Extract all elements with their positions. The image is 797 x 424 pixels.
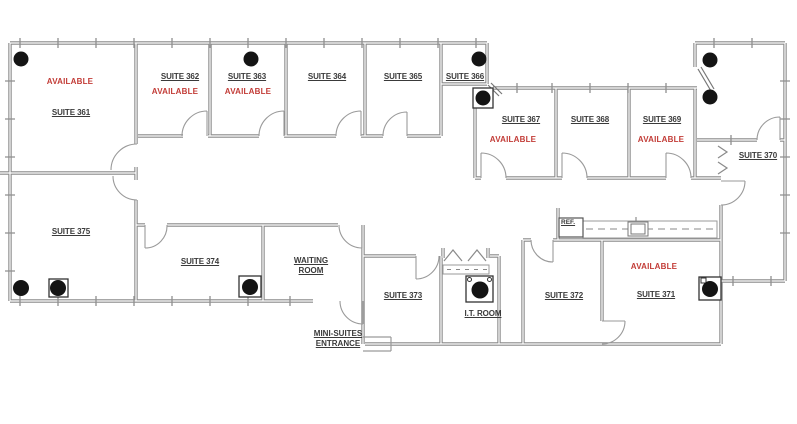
waiting-room-line1: WAITING (294, 256, 328, 265)
floor-plan: AVAILABLE SUITE 361 SUITE 362 AVAILABLE … (0, 0, 797, 424)
label-suite-365: SUITE 365 (384, 72, 422, 81)
label-suite-370: SUITE 370 (739, 151, 777, 160)
label-suite-373: SUITE 373 (384, 291, 422, 300)
label-refrigerator: REF. (561, 219, 575, 226)
status-suite-363: AVAILABLE (225, 87, 271, 96)
label-suite-362: SUITE 362 (161, 72, 199, 81)
label-suite-366: SUITE 366 (446, 72, 484, 81)
label-suite-367: SUITE 367 (502, 115, 540, 124)
label-suite-363: SUITE 363 (228, 72, 266, 81)
label-it-room: I.T. ROOM (465, 309, 502, 318)
entrance-line1: MINI-SUITES (314, 329, 362, 338)
status-suite-369: AVAILABLE (638, 135, 684, 144)
label-waiting-room: WAITING ROOM (294, 256, 328, 276)
label-suite-361: SUITE 361 (52, 108, 90, 117)
label-suite-375: SUITE 375 (52, 227, 90, 236)
label-suite-364: SUITE 364 (308, 72, 346, 81)
labels-layer: AVAILABLE SUITE 361 SUITE 362 AVAILABLE … (0, 0, 797, 424)
status-suite-371: AVAILABLE (631, 262, 677, 271)
label-suite-368: SUITE 368 (571, 115, 609, 124)
label-suite-371: SUITE 371 (637, 290, 675, 299)
status-suite-362: AVAILABLE (152, 87, 198, 96)
label-suite-369: SUITE 369 (643, 115, 681, 124)
status-suite-367: AVAILABLE (490, 135, 536, 144)
status-suite-361: AVAILABLE (47, 77, 93, 86)
label-suite-372: SUITE 372 (545, 291, 583, 300)
waiting-room-line2: ROOM (299, 266, 324, 275)
entrance-line2: ENTRANCE (316, 339, 360, 348)
label-mini-suites-entrance: MINI-SUITES ENTRANCE (314, 329, 362, 349)
label-suite-374: SUITE 374 (181, 257, 219, 266)
